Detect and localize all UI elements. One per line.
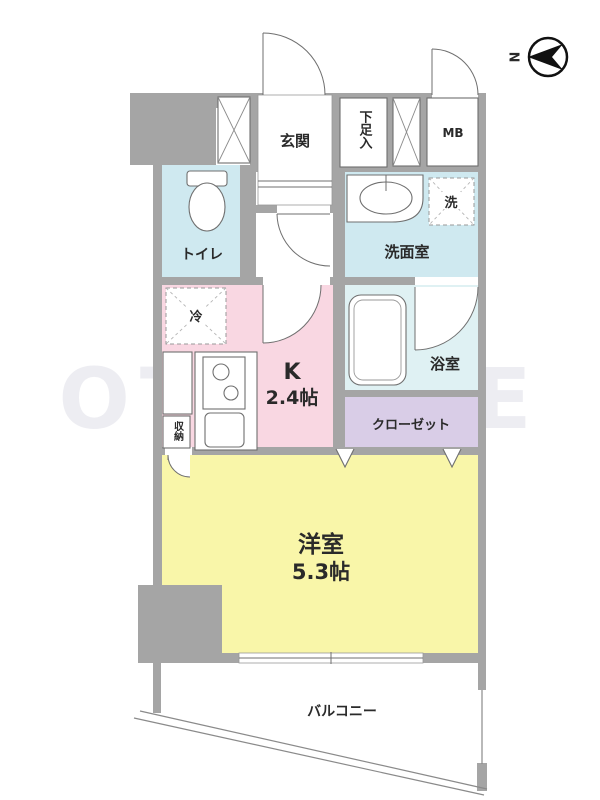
genkan-label: 玄関: [280, 132, 310, 150]
kitchen-label: K: [283, 360, 301, 385]
toilet-label: トイレ: [181, 247, 223, 263]
western-room-size-label: 5.3帖: [292, 560, 350, 584]
north-compass-icon: N: [509, 38, 568, 76]
north-label: N: [509, 52, 524, 63]
hallway-door-arc: [277, 214, 330, 266]
bathroom-label: 浴室: [430, 355, 460, 373]
kitchen-size-label: 2.4帖: [266, 386, 319, 409]
shoe-storage-label: 下足入: [357, 110, 373, 149]
washing-machine-label: 洗: [444, 195, 457, 211]
floorplan-image: OT CORE: [0, 0, 600, 800]
vanity-sink-icon: [347, 175, 423, 222]
genkan-box: [258, 95, 332, 205]
meter-box-door-arc: [432, 49, 478, 95]
kitchen-sink-icon: [205, 413, 244, 447]
bathtub-icon: [349, 295, 406, 385]
closet-label: クローゼット: [372, 417, 450, 433]
balcony-label: バルコニー: [307, 704, 377, 720]
meter-box-label: MB: [442, 126, 463, 140]
floor-plan-svg: OT CORE: [0, 0, 600, 800]
washroom-label: 洗面室: [384, 243, 429, 261]
western-room-label: 洋室: [298, 531, 344, 558]
storage-label: 収納: [172, 421, 184, 442]
window-sliding: [239, 652, 423, 664]
refrigerator-label: 冷: [189, 309, 202, 325]
toilet-icon: [187, 171, 227, 231]
entrance-door-arc: [263, 33, 325, 95]
stove-icon: [203, 357, 245, 409]
